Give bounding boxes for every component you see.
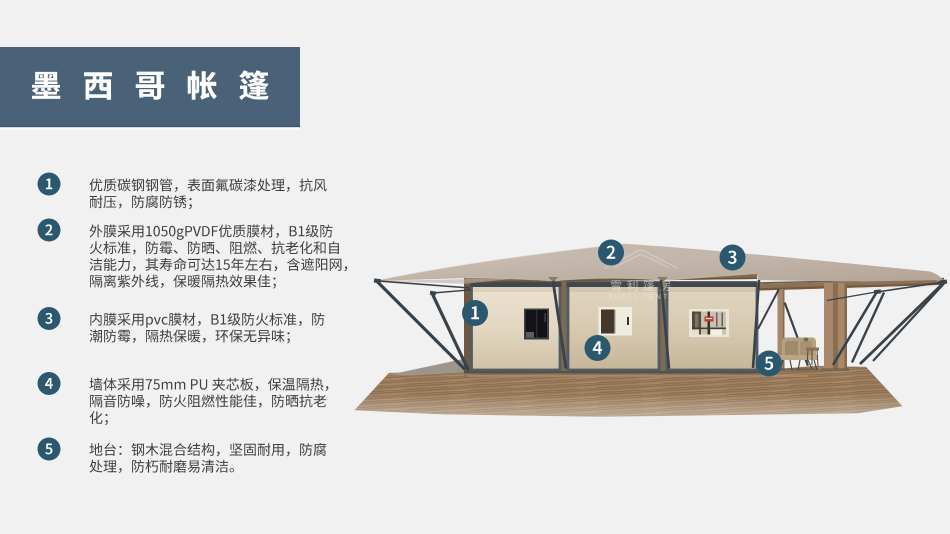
svg-text:XUELI TENT: XUELI TENT [608,294,669,301]
